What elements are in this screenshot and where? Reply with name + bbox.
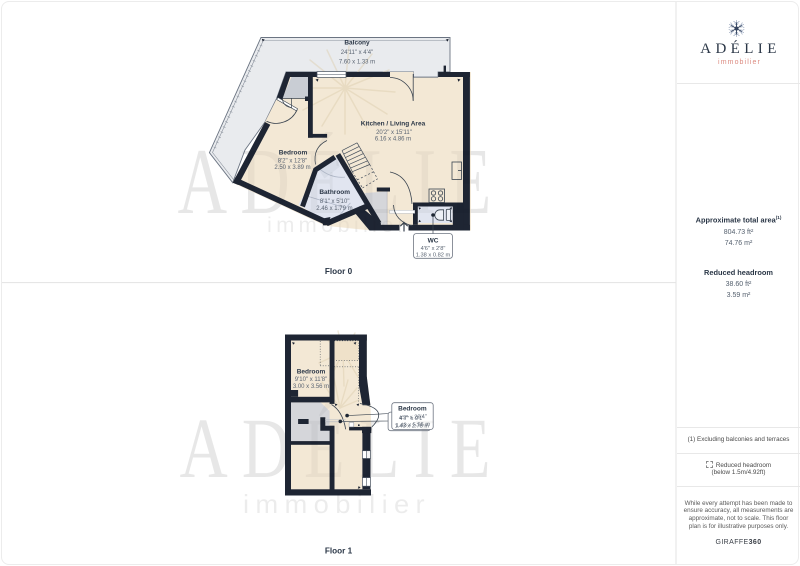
svg-text:1.38 x 0.82 m: 1.38 x 0.82 m [416,253,451,259]
svg-text:Floor 1: Floor 1 [325,547,353,556]
svg-text:Kitchen / Living Area: Kitchen / Living Area [361,120,426,127]
svg-text:9'10" x 11'8": 9'10" x 11'8" [295,377,327,383]
svg-text:ADÉLIE: ADÉLIE [180,400,505,496]
svg-text:3.00 x 3.56 m: 3.00 x 3.56 m [293,384,329,390]
svg-text:24'11" x 4'4": 24'11" x 4'4" [341,50,373,56]
svg-text:Floor 0: Floor 0 [325,267,353,276]
svg-text:WC: WC [428,237,439,244]
svg-text:immobilier: immobilier [243,489,431,519]
svg-text:Bedroom: Bedroom [297,369,326,376]
svg-text:immobilier: immobilier [267,214,409,237]
svg-text:7.60 x 1.33 m: 7.60 x 1.33 m [339,60,375,66]
svg-text:Balcony: Balcony [344,40,370,47]
svg-text:4'6" x 2'8": 4'6" x 2'8" [421,246,446,252]
